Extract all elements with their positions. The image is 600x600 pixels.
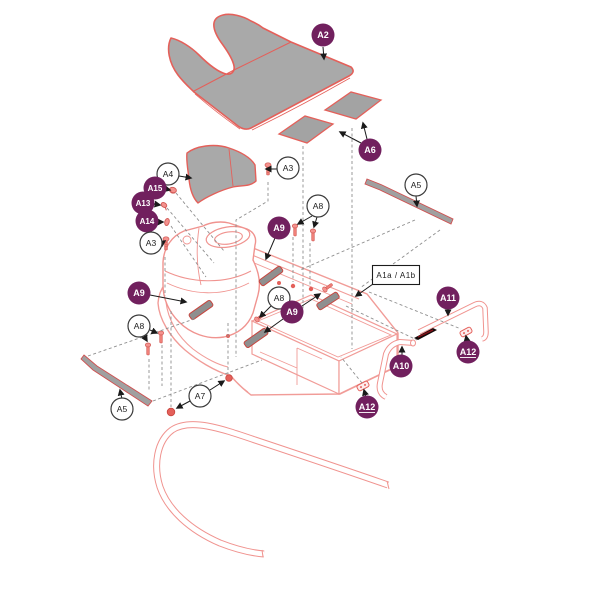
svg-text:A5: A5	[411, 180, 422, 190]
fastener-a14	[164, 218, 170, 226]
callout-a14[interactable]: A14	[136, 210, 159, 233]
callout-a3-lower: A3	[140, 232, 162, 254]
svg-text:A9: A9	[133, 288, 145, 298]
svg-text:A5: A5	[117, 404, 128, 414]
svg-text:A12: A12	[359, 402, 376, 412]
svg-text:A10: A10	[393, 361, 410, 371]
pad-strip-front	[279, 116, 333, 143]
svg-text:A14: A14	[140, 217, 155, 226]
svg-text:A11: A11	[440, 293, 456, 303]
svg-text:A7: A7	[195, 391, 206, 401]
callout-a3-upper: A3	[277, 157, 299, 179]
svg-text:A1a / A1b: A1a / A1b	[376, 271, 415, 280]
callout-a9-mid[interactable]: A9	[281, 301, 304, 324]
svg-text:A2: A2	[317, 30, 329, 40]
front-shroud	[163, 222, 259, 338]
hole-dot	[291, 284, 295, 288]
svg-text:A6: A6	[364, 145, 376, 155]
svg-text:A3: A3	[146, 238, 157, 248]
bumper-trim-loop	[157, 425, 389, 557]
callout-a7: A7	[189, 385, 211, 407]
callout-a10[interactable]: A10	[390, 355, 413, 378]
svg-text:A9: A9	[286, 307, 298, 317]
pad-strip-rear	[325, 92, 381, 119]
callout-a8-left: A8	[128, 315, 150, 337]
svg-text:A9: A9	[273, 223, 285, 233]
callout-a6[interactable]: A6	[359, 139, 382, 162]
clip-right	[459, 327, 472, 338]
screw-a8-top-2	[310, 229, 315, 241]
floor-pad-left	[167, 408, 175, 416]
screw-a8-left-1	[145, 343, 150, 355]
svg-text:A8: A8	[134, 321, 145, 331]
hole-dot	[277, 281, 281, 285]
callout-a11[interactable]: A11	[437, 287, 460, 310]
svg-text:A12: A12	[460, 347, 477, 357]
exploded-parts-diagram: A2 A6 A4 A3 A15 A13 A14 A3 A8 A9 A5	[0, 0, 600, 600]
callout-a9-left[interactable]: A9	[128, 282, 151, 305]
callout-a12-right[interactable]: A12	[457, 341, 480, 364]
callout-a12-bottom[interactable]: A12	[356, 396, 379, 419]
svg-text:A4: A4	[163, 169, 174, 179]
svg-text:A15: A15	[148, 184, 163, 193]
callout-a8-top: A8	[307, 195, 329, 217]
trim-strip-left	[81, 355, 152, 406]
screw-a8-left-2	[158, 331, 163, 343]
svg-text:A3: A3	[283, 163, 294, 173]
svg-text:A13: A13	[136, 199, 151, 208]
callout-a9-top[interactable]: A9	[268, 217, 291, 240]
callout-a5-right: A5	[405, 174, 427, 196]
callout-frame-box: A1a / A1b	[373, 266, 420, 285]
floor-pad-right	[226, 375, 233, 382]
svg-text:A8: A8	[313, 201, 324, 211]
hole-dot	[309, 287, 313, 291]
svg-text:A8: A8	[274, 293, 285, 303]
screw-a8-top-1	[292, 224, 297, 236]
callout-a2[interactable]: A2	[312, 24, 335, 47]
fender-pad	[187, 146, 256, 203]
callout-a5-left: A5	[111, 398, 133, 420]
